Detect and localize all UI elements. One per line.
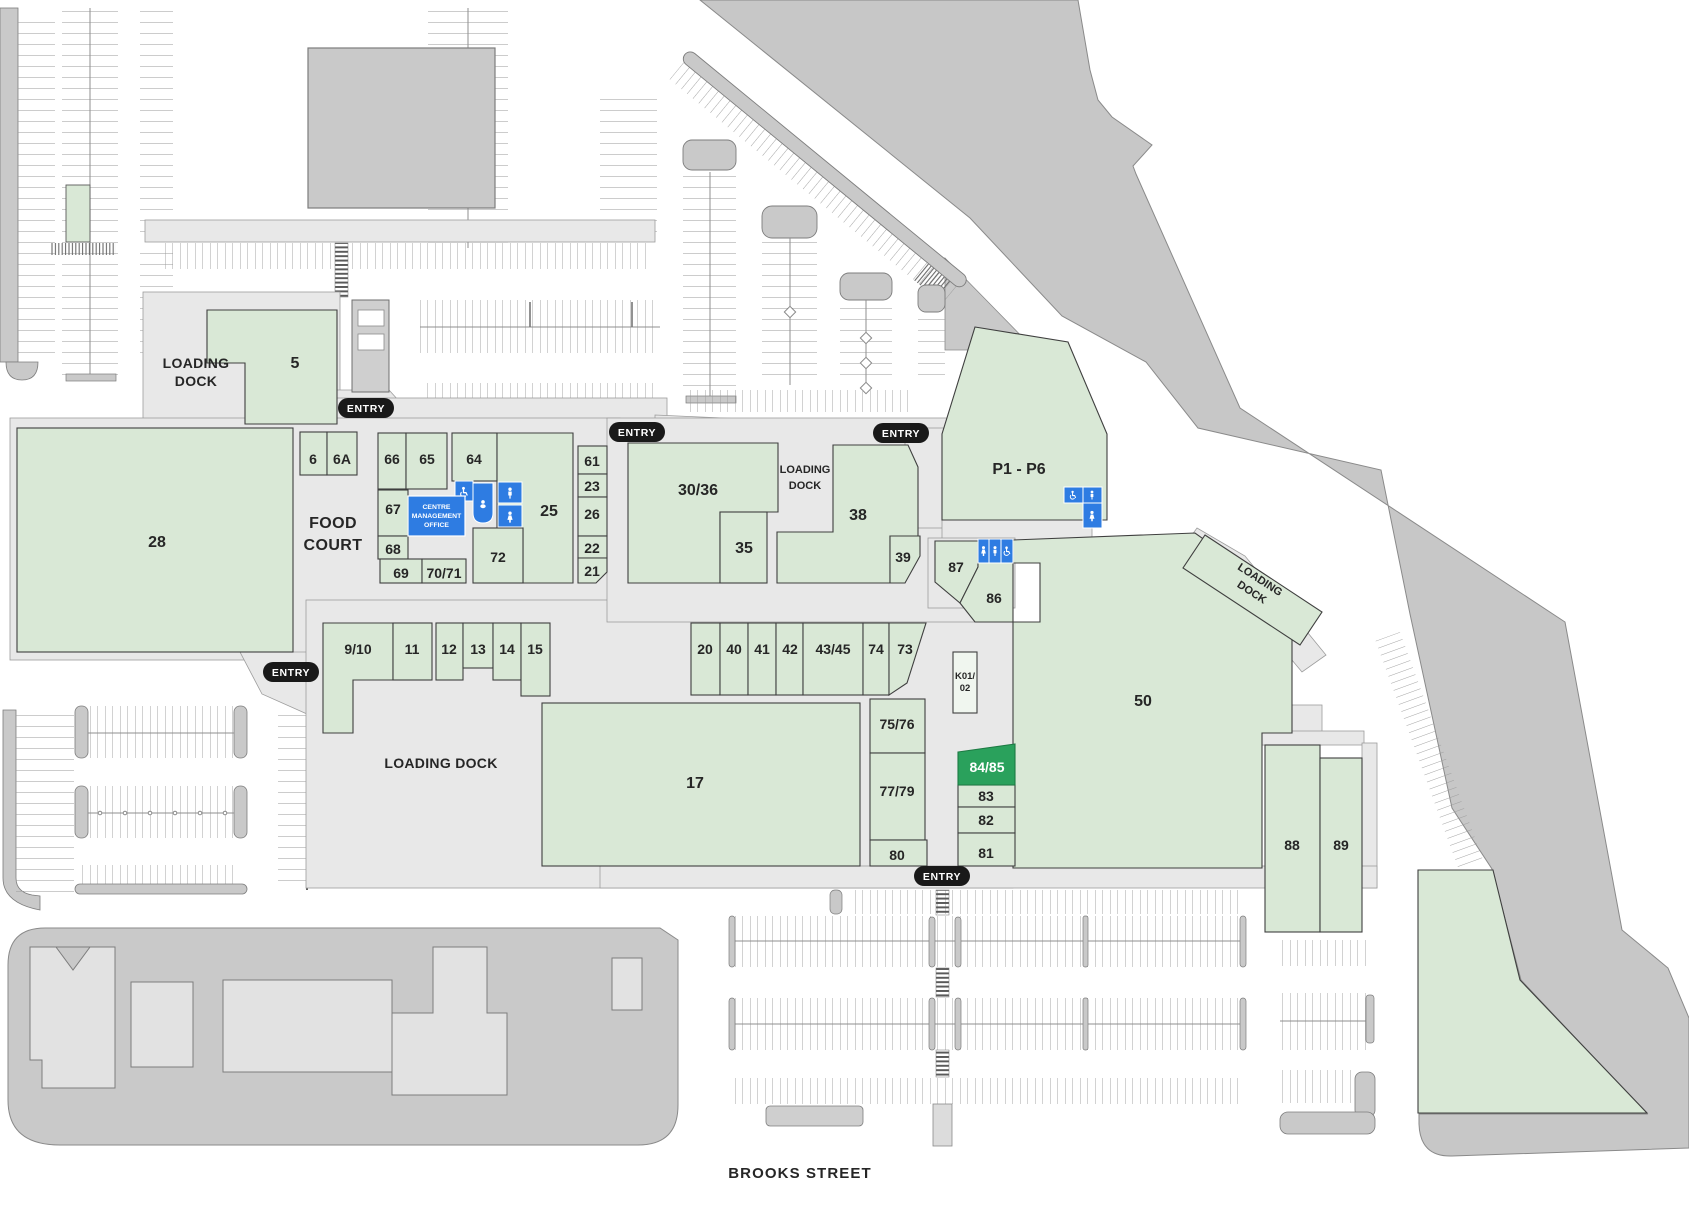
store-20-label: 20: [697, 641, 713, 657]
cmo-line2: MANAGEMENT: [412, 513, 462, 520]
store-82-label: 82: [978, 812, 994, 828]
store-86-label: 86: [986, 590, 1002, 606]
store-p1-p6-label: P1 - P6: [992, 461, 1045, 478]
store-42-label: 42: [782, 641, 798, 657]
entry-badge-northeast[interactable]: ENTRY: [873, 423, 929, 443]
food-court-line1: FOOD: [309, 515, 357, 532]
store-77-79-label: 77/79: [879, 783, 914, 799]
cmo-line3: OFFICE: [424, 522, 449, 529]
street-label: BROOKS STREET: [728, 1165, 871, 1182]
store-72-label: 72: [490, 549, 506, 565]
store-6-label: 6: [309, 451, 317, 467]
store-64-label: 64: [466, 451, 482, 467]
store-12-label: 12: [441, 641, 457, 657]
store-87-label: 87: [948, 559, 964, 575]
store-68-label: 68: [385, 541, 401, 557]
entry-badge-west[interactable]: ENTRY: [263, 662, 319, 682]
loading-dock-west-line2: DOCK: [175, 373, 217, 389]
store-14-label: 14: [499, 641, 515, 657]
store-39-label: 39: [895, 549, 911, 565]
store-5-label: 5: [291, 355, 300, 372]
parking-lot-west: [3, 700, 307, 910]
store-22-label: 22: [584, 540, 600, 556]
store-74-label: 74: [868, 641, 884, 657]
entry-badge-north-center[interactable]: ENTRY: [609, 422, 665, 442]
anchor-building: [308, 48, 495, 208]
store-80-label: 80: [889, 847, 905, 863]
svg-text:ENTRY: ENTRY: [618, 427, 656, 439]
wheelchair-toilet-tile: [1064, 487, 1083, 503]
store-73-label: 73: [897, 641, 913, 657]
store-74[interactable]: [863, 623, 889, 695]
store-23-label: 23: [584, 478, 600, 494]
store-25-label: 25: [540, 503, 558, 520]
store-70-71-label: 70/71: [426, 565, 461, 581]
store-81-label: 81: [978, 845, 994, 861]
entry-badge-northwest[interactable]: ENTRY: [338, 398, 394, 418]
green-pad-nw: [66, 185, 90, 242]
store-83-label: 83: [978, 788, 994, 804]
loading-dock-mid-line2: DOCK: [789, 480, 821, 492]
store-11-label: 11: [405, 641, 420, 657]
entry-badge-south[interactable]: ENTRY: [914, 866, 970, 886]
building-footprint: [223, 980, 392, 1072]
store-43-45-label: 43/45: [815, 641, 850, 657]
amenities-store-86: [978, 539, 1013, 563]
store-41-label: 41: [754, 641, 770, 657]
store-50-label: 50: [1134, 693, 1152, 710]
svg-text:ENTRY: ENTRY: [272, 667, 310, 679]
store-15[interactable]: [521, 623, 550, 696]
store-13-label: 13: [470, 641, 486, 657]
mall-map: CENTRE MANAGEMENT OFFICE 5 6 6A 66 65 64…: [0, 0, 1689, 1211]
svg-text:ENTRY: ENTRY: [882, 428, 920, 440]
store-17-label: 17: [686, 775, 704, 792]
kiosk-label-line1: K01/: [955, 671, 975, 682]
store-41[interactable]: [748, 623, 776, 695]
loading-dock-west-line1: LOADING: [163, 355, 230, 371]
adjacent-lot-southwest: [8, 928, 678, 1145]
store-35-label: 35: [735, 540, 753, 557]
centre-management-office[interactable]: CENTRE MANAGEMENT OFFICE: [408, 496, 465, 536]
store-20[interactable]: [691, 623, 720, 695]
store-15-label: 15: [527, 641, 543, 657]
store-38-label: 38: [849, 507, 867, 524]
loading-dock-south-label: LOADING DOCK: [384, 755, 497, 771]
store-6A-label: 6A: [333, 451, 351, 467]
store-89-label: 89: [1333, 837, 1349, 853]
loading-dock-mid-line1: LOADING: [780, 464, 831, 476]
store-66-label: 66: [384, 451, 400, 467]
building-footprint: [131, 982, 193, 1067]
store-40[interactable]: [720, 623, 748, 695]
cmo-line1: CENTRE: [423, 504, 451, 511]
kiosk-label-line2: 02: [960, 683, 971, 694]
food-court-line2: COURT: [304, 537, 363, 554]
mall-map-svg: CENTRE MANAGEMENT OFFICE 5 6 6A 66 65 64…: [0, 0, 1689, 1211]
store-42[interactable]: [776, 623, 803, 695]
store-28-label: 28: [148, 534, 166, 551]
store-69-label: 69: [393, 565, 409, 581]
store-30-36-label: 30/36: [678, 482, 718, 499]
store-61-label: 61: [584, 453, 600, 469]
store-40-label: 40: [726, 641, 742, 657]
store-26-label: 26: [584, 506, 600, 522]
building-footprint: [612, 958, 642, 1010]
store-65-label: 65: [419, 451, 435, 467]
store-9-10-label: 9/10: [344, 641, 371, 657]
store-67-label: 67: [385, 501, 401, 517]
svg-text:ENTRY: ENTRY: [347, 403, 385, 415]
store-43-45[interactable]: [803, 623, 863, 695]
store-75-76-label: 75/76: [879, 716, 914, 732]
store-88-label: 88: [1284, 837, 1300, 853]
store-84-85-label: 84/85: [969, 759, 1004, 775]
svg-text:ENTRY: ENTRY: [923, 871, 961, 883]
store-21-label: 21: [584, 563, 600, 579]
